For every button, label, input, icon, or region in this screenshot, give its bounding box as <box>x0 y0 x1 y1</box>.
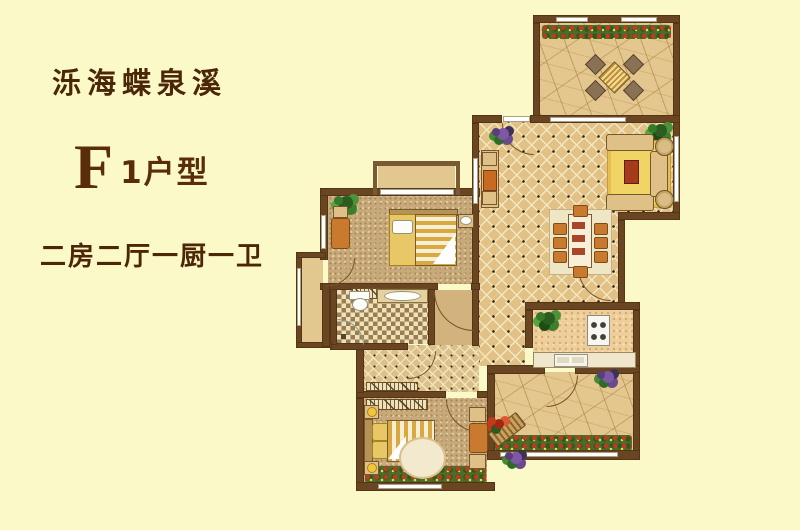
flower-cluster <box>488 417 496 425</box>
side-table <box>469 407 486 422</box>
hall-strip-floor <box>479 302 525 366</box>
motif-diamond <box>623 80 644 101</box>
wall <box>356 345 364 393</box>
floor-plan <box>0 0 800 530</box>
tv <box>483 170 497 191</box>
window <box>556 17 588 22</box>
potted-plant <box>505 452 513 460</box>
placemat <box>572 248 585 255</box>
potted-plant <box>492 128 500 136</box>
window <box>621 17 657 22</box>
window <box>321 215 326 249</box>
sofa <box>606 134 654 151</box>
wall <box>533 23 540 122</box>
wall <box>472 115 502 123</box>
kitchen-sink <box>554 354 588 367</box>
bedroom-armchair <box>469 423 488 453</box>
wall <box>618 212 680 220</box>
window <box>378 484 442 489</box>
wall <box>477 391 488 398</box>
floorplan-page: { "header": { "project_name": "泺海蝶泉溪", "… <box>0 0 800 530</box>
dining-chair <box>553 251 567 263</box>
wall <box>618 220 625 304</box>
side-table <box>655 137 674 156</box>
window <box>674 136 679 202</box>
balcony-railing <box>373 161 460 166</box>
side-table <box>469 454 486 469</box>
balcony-slider-window <box>380 189 454 195</box>
bathtub <box>384 291 421 301</box>
wall <box>525 310 533 348</box>
dining-chair <box>573 266 588 278</box>
potted-plant <box>648 124 657 133</box>
wall <box>673 23 680 122</box>
speaker <box>482 152 497 166</box>
corridor-closet <box>366 382 418 391</box>
entry-threshold <box>503 116 530 122</box>
pillow <box>392 220 413 234</box>
floor-drain <box>341 334 346 339</box>
wall <box>471 283 480 290</box>
top-terrace-flowerbed <box>542 25 671 39</box>
potted-plant <box>536 312 545 321</box>
terrace-slider-window <box>550 117 626 122</box>
lamp <box>367 463 377 473</box>
wall <box>356 391 446 398</box>
toilet-bowl <box>352 298 368 311</box>
dining-chair <box>594 237 608 249</box>
sofa <box>606 194 654 211</box>
dining-chair <box>594 251 608 263</box>
round-rug <box>399 437 446 479</box>
side-table <box>333 206 348 218</box>
dining-chair <box>553 223 567 235</box>
wall <box>322 283 330 347</box>
coffee-table <box>624 160 639 184</box>
stove <box>587 315 610 346</box>
lamp <box>367 407 377 417</box>
potted-plant <box>334 196 343 205</box>
window <box>473 158 478 204</box>
wall <box>356 398 364 490</box>
garden-terrace-flowerbed <box>495 435 632 451</box>
wall <box>633 372 640 460</box>
placemat <box>572 222 585 229</box>
side-balcony-floor <box>302 258 323 342</box>
dining-chair <box>553 237 567 249</box>
speaker <box>482 191 497 205</box>
bedroom-armchair <box>331 218 350 249</box>
placemat <box>572 235 585 242</box>
lamp <box>460 216 472 225</box>
dining-chair <box>573 205 588 217</box>
wall <box>330 288 337 345</box>
window <box>297 268 301 326</box>
wall <box>525 302 640 310</box>
balcony-railing <box>373 166 377 195</box>
terrace-motif <box>582 53 646 101</box>
window <box>500 452 618 457</box>
dining-chair <box>594 223 608 235</box>
balcony-railing <box>456 166 460 195</box>
potted-plant <box>597 371 605 379</box>
side-table <box>655 190 674 209</box>
wall <box>296 252 326 258</box>
